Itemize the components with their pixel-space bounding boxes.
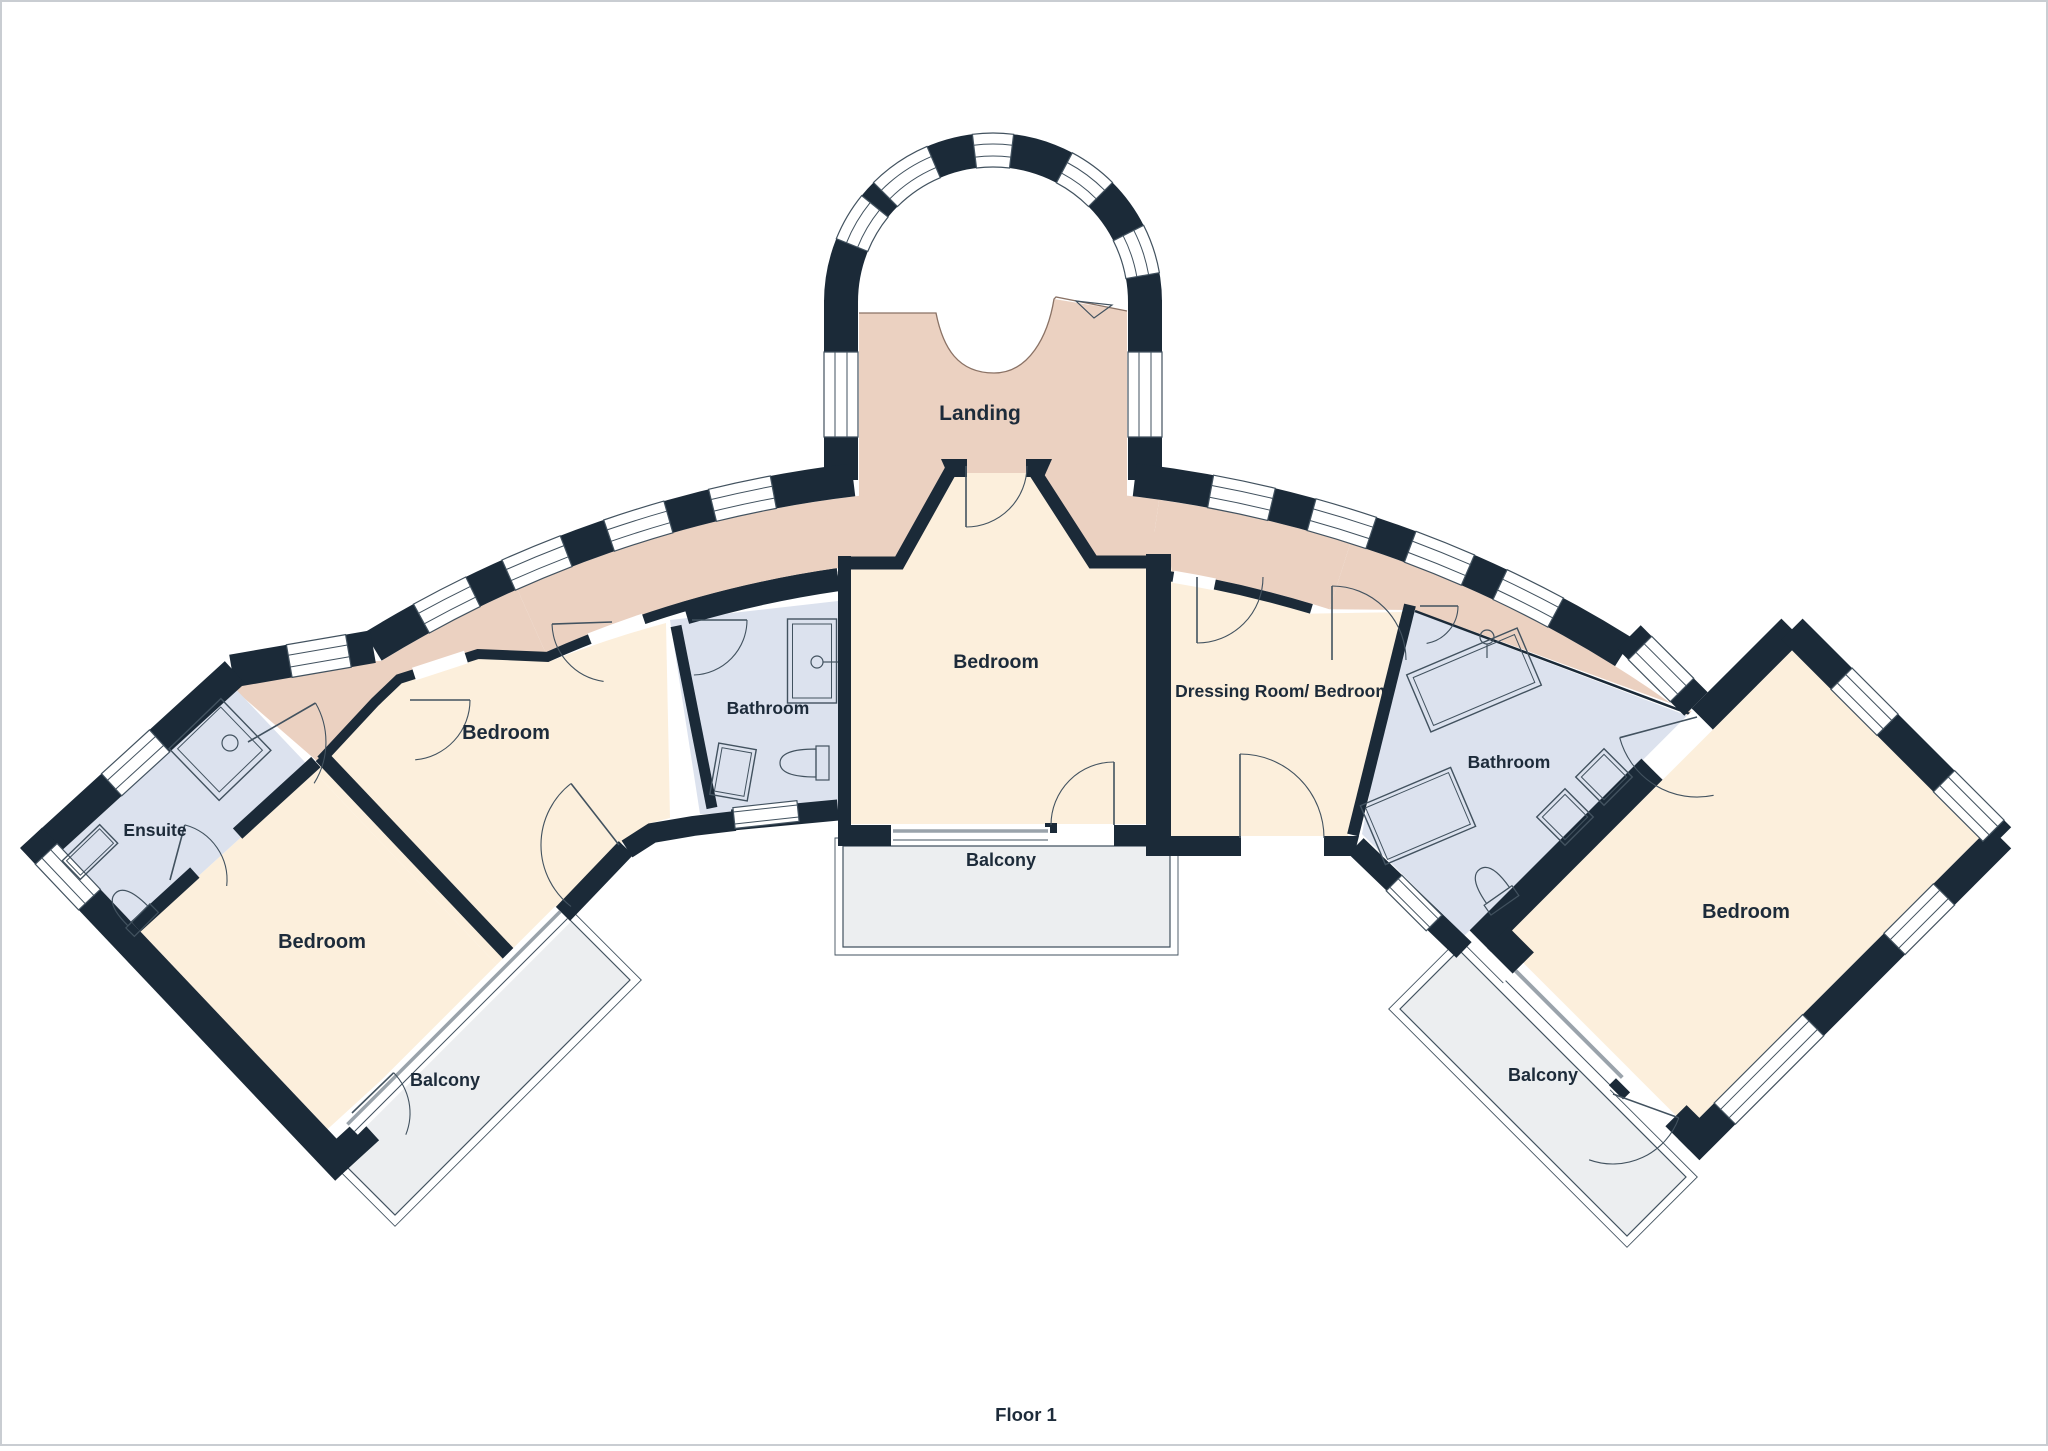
svg-text:Bathroom: Bathroom: [1468, 752, 1551, 772]
svg-text:Dressing Room/ Bedroom: Dressing Room/ Bedroom: [1175, 681, 1391, 701]
svg-text:Bedroom: Bedroom: [953, 651, 1039, 673]
svg-text:Floor 1: Floor 1: [995, 1404, 1057, 1425]
svg-text:Balcony: Balcony: [966, 850, 1036, 870]
svg-text:Landing: Landing: [939, 402, 1021, 425]
svg-text:Bedroom: Bedroom: [1702, 901, 1790, 923]
svg-text:Bedroom: Bedroom: [462, 722, 550, 744]
svg-text:Balcony: Balcony: [1508, 1065, 1578, 1085]
svg-text:Balcony: Balcony: [410, 1070, 480, 1090]
svg-text:Bathroom: Bathroom: [727, 698, 810, 718]
svg-text:Bedroom: Bedroom: [278, 931, 366, 953]
svg-text:Ensuite: Ensuite: [123, 820, 186, 840]
